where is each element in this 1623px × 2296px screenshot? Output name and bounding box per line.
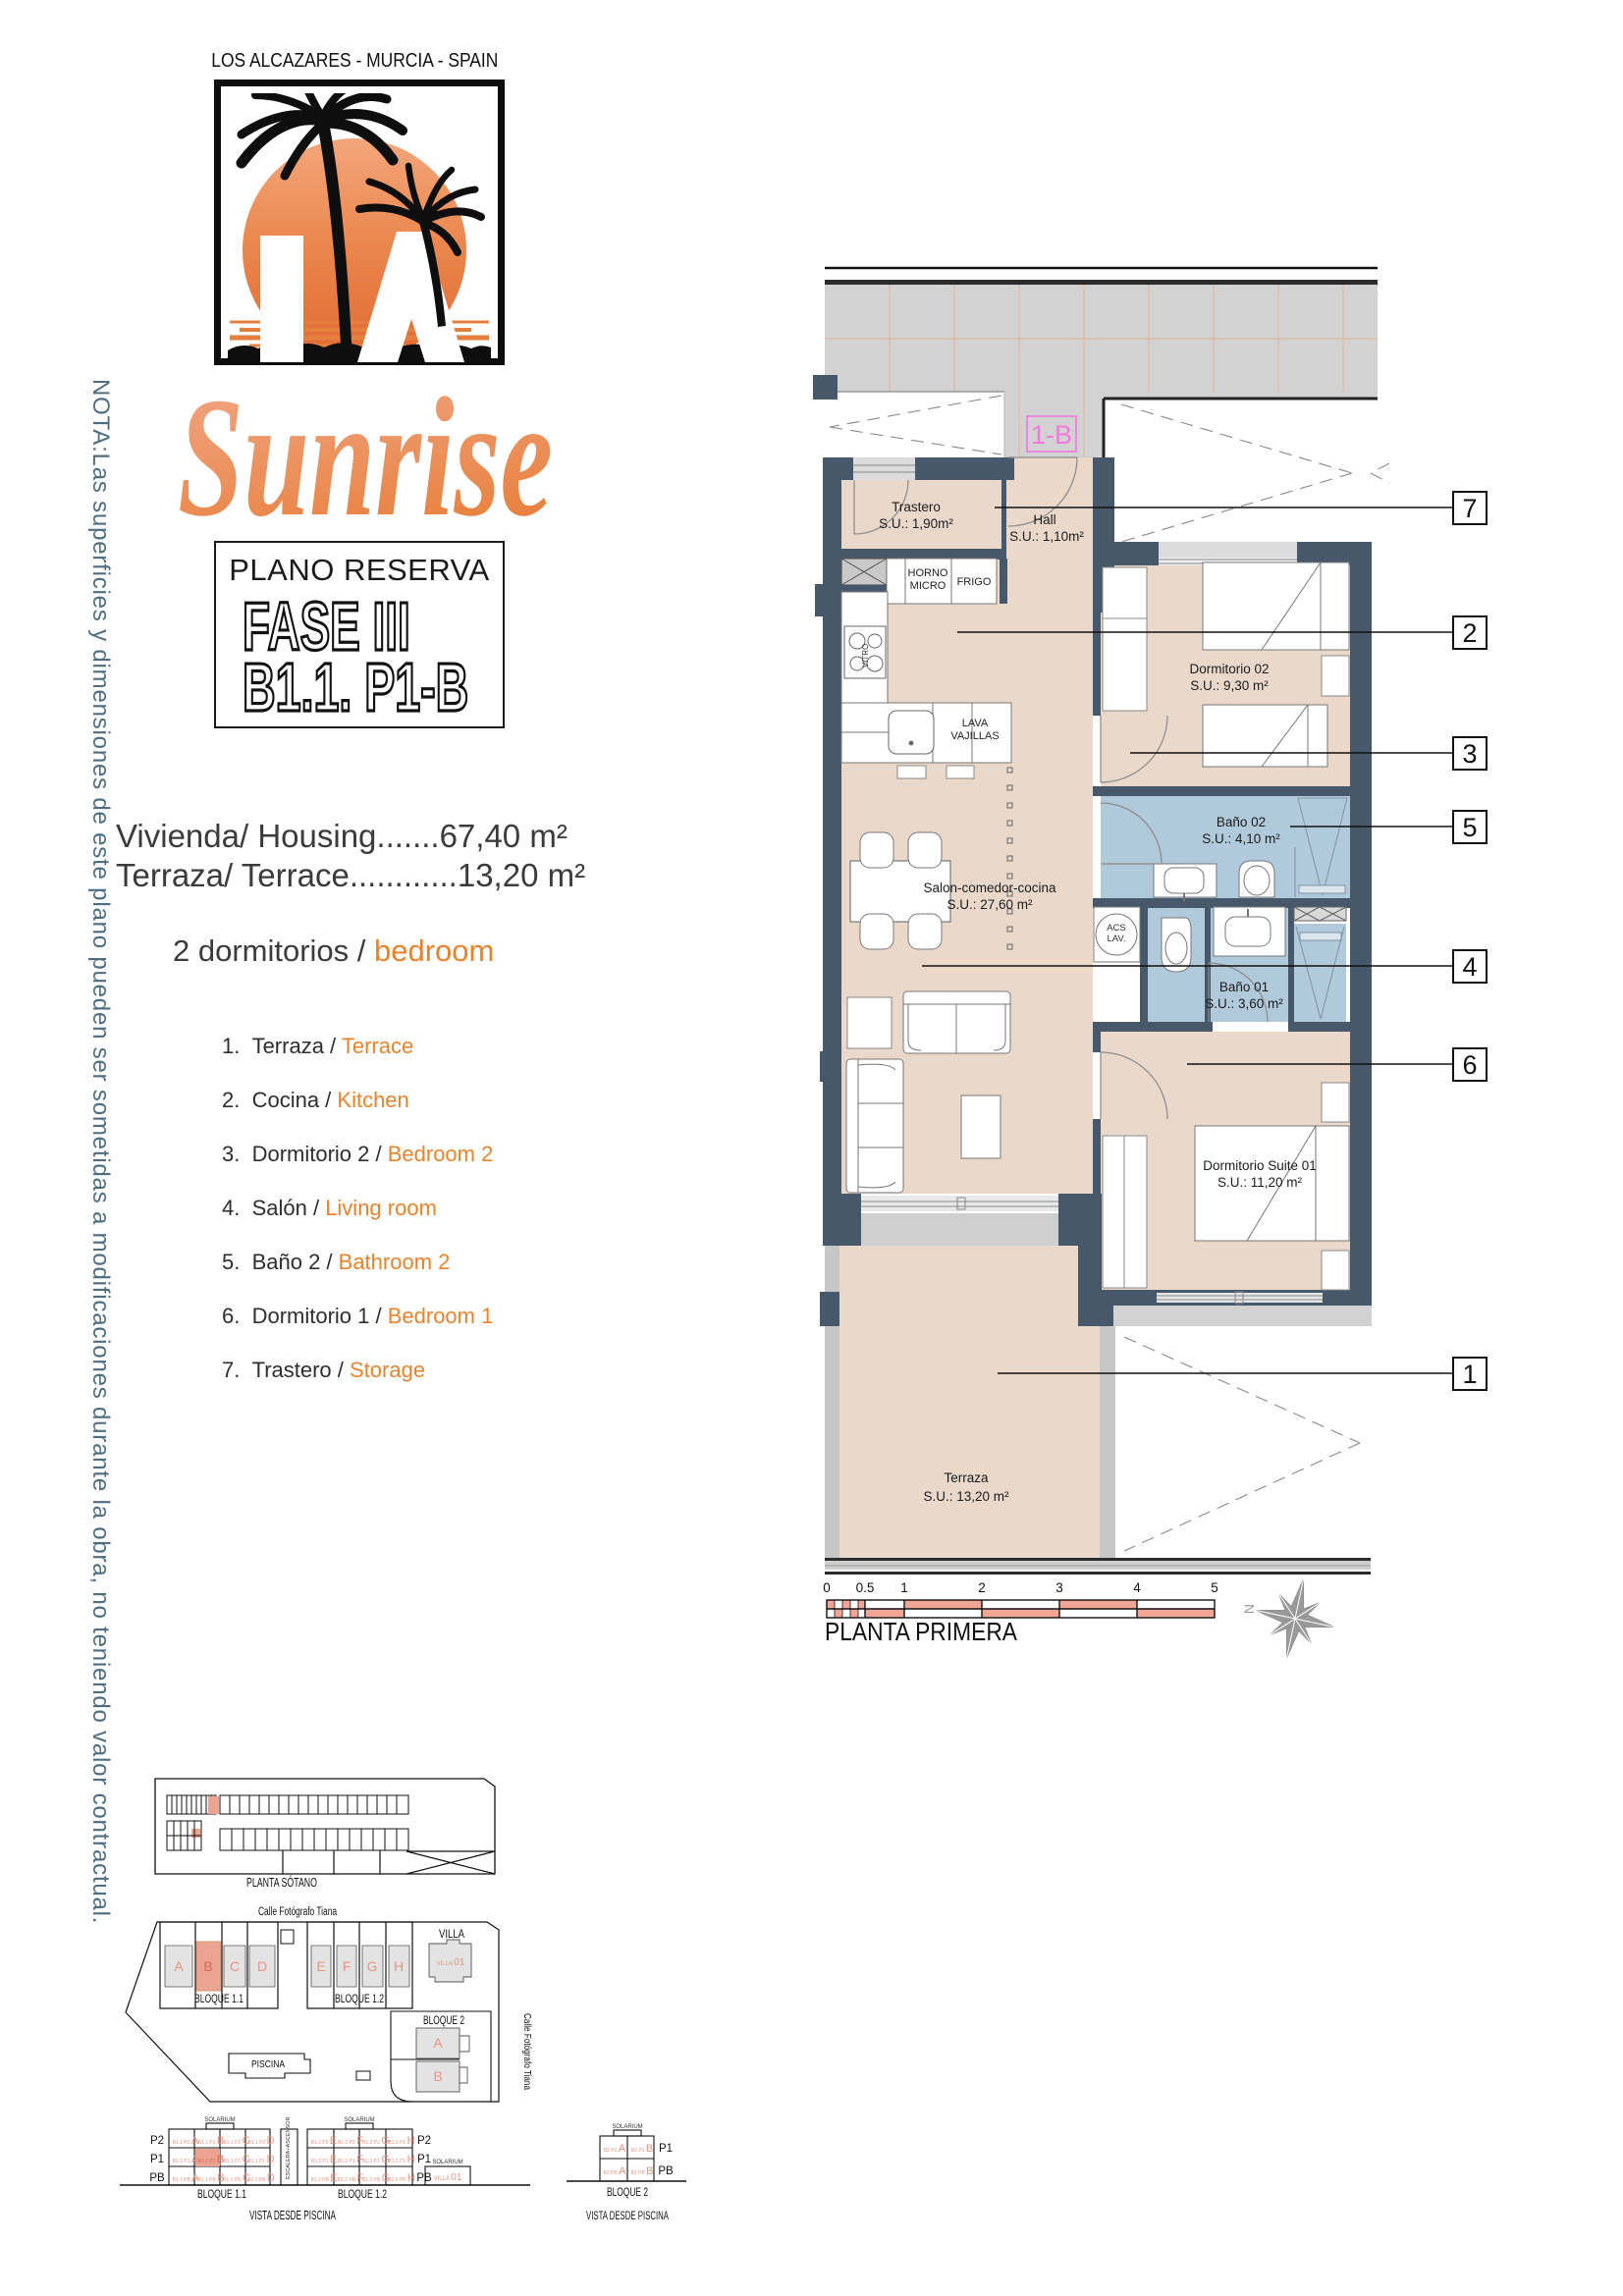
svg-text:Calle Fotógrafo Tiana: Calle Fotógrafo Tiana bbox=[258, 1906, 337, 1918]
svg-text:0.5: 0.5 bbox=[856, 1580, 875, 1595]
svg-text:B1.1 P2 C: B1.1 P2 C bbox=[223, 2135, 249, 2147]
svg-text:B1.2 P1 E: B1.2 P1 E bbox=[311, 2154, 338, 2165]
svg-text:VILLA 01: VILLA 01 bbox=[434, 2172, 462, 2183]
svg-text:PB: PB bbox=[416, 2172, 432, 2184]
svg-text:Dormitorio 02: Dormitorio 02 bbox=[1189, 662, 1269, 676]
svg-text:MICRO: MICRO bbox=[910, 580, 947, 592]
svg-text:B1.1 PB A: B1.1 PB A bbox=[172, 2172, 199, 2184]
svg-text:B2 P1 A: B2 P1 A bbox=[604, 2143, 626, 2155]
svg-text:B2 PB B: B2 PB B bbox=[631, 2165, 654, 2177]
svg-text:1: 1 bbox=[900, 1580, 908, 1595]
svg-text:B1.1 PB C: B1.1 PB C bbox=[223, 2172, 250, 2184]
svg-text:Calle Fotógrafo Tiana: Calle Fotógrafo Tiana bbox=[521, 2013, 533, 2090]
svg-text:B1.2 P1 G: B1.2 P1 G bbox=[362, 2154, 390, 2165]
svg-text:6: 6 bbox=[1462, 1050, 1477, 1080]
svg-text:B1.2 PB E: B1.2 PB E bbox=[310, 2172, 337, 2184]
svg-text:Terraza: Terraza bbox=[944, 1470, 989, 1485]
svg-text:G: G bbox=[367, 1958, 378, 1974]
svg-text:Sunrise: Sunrise bbox=[178, 365, 553, 542]
svg-text:2: 2 bbox=[978, 1580, 986, 1595]
svg-text:1-B: 1-B bbox=[1031, 420, 1072, 450]
svg-text:BLOQUE 2: BLOQUE 2 bbox=[607, 2187, 648, 2199]
svg-text:B1.2 P2 E: B1.2 P2 E bbox=[311, 2135, 338, 2147]
svg-text:B1.1 P2 A: B1.1 P2 A bbox=[173, 2135, 199, 2147]
svg-text:A: A bbox=[433, 2035, 443, 2051]
svg-text:SOLARIUM: SOLARIUM bbox=[612, 2124, 642, 2130]
svg-text:B1.2 P1 H: B1.2 P1 H bbox=[388, 2154, 414, 2165]
svg-text:Baño 02: Baño 02 bbox=[1217, 815, 1266, 829]
svg-text:LAV.: LAV. bbox=[1107, 934, 1125, 944]
svg-text:B1.2 P1 F: B1.2 P1 F bbox=[338, 2154, 363, 2165]
svg-text:B1.1 PB D: B1.1 PB D bbox=[247, 2172, 275, 2184]
svg-text:3: 3 bbox=[1462, 739, 1477, 769]
svg-text:SOLARIUM: SOLARIUM bbox=[432, 2160, 462, 2165]
svg-text:VAJILLAS: VAJILLAS bbox=[950, 730, 999, 742]
svg-text:PISCINA: PISCINA bbox=[251, 2058, 285, 2070]
svg-text:SOLARIUM: SOLARIUM bbox=[204, 2117, 235, 2123]
svg-text:B2 P1 B: B2 P1 B bbox=[631, 2143, 653, 2155]
svg-text:B1.2 PB H: B1.2 PB H bbox=[388, 2172, 415, 2184]
svg-text:LAVA: LAVA bbox=[962, 718, 989, 729]
svg-text:7: 7 bbox=[1462, 494, 1477, 523]
svg-text:B1.2 P2 H: B1.2 P2 H bbox=[388, 2135, 414, 2147]
svg-text:C: C bbox=[230, 1958, 240, 1974]
svg-text:Trastero: Trastero bbox=[892, 500, 941, 514]
svg-text:B: B bbox=[433, 2068, 442, 2084]
svg-text:B1.1 P1 C: B1.1 P1 C bbox=[223, 2154, 249, 2165]
svg-text:A: A bbox=[174, 1958, 184, 1974]
svg-text:B: B bbox=[203, 1958, 212, 1974]
svg-text:H: H bbox=[394, 1958, 404, 1974]
svg-text:P1: P1 bbox=[150, 2154, 164, 2165]
svg-text:B1.1 P2 B: B1.1 P2 B bbox=[198, 2135, 225, 2147]
svg-text:Baño 01: Baño 01 bbox=[1219, 980, 1269, 994]
svg-text:S.U.: 1,90m²: S.U.: 1,90m² bbox=[879, 516, 953, 531]
svg-text:4: 4 bbox=[1133, 1580, 1141, 1595]
svg-text:5: 5 bbox=[1211, 1580, 1218, 1595]
svg-text:ACS: ACS bbox=[1107, 923, 1126, 934]
svg-text:F: F bbox=[343, 1958, 352, 1974]
svg-text:3: 3 bbox=[1055, 1580, 1063, 1595]
svg-text:B1.1 PB B: B1.1 PB B bbox=[197, 2172, 224, 2184]
svg-text:VITRO: VITRO bbox=[861, 644, 870, 667]
svg-text:SOLARIUM: SOLARIUM bbox=[344, 2117, 374, 2123]
svg-text:P2: P2 bbox=[417, 2135, 431, 2147]
svg-text:S.U.: 13,20 m²: S.U.: 13,20 m² bbox=[923, 1489, 1009, 1504]
svg-text:ESCALERA+ASCENSOR: ESCALERA+ASCENSOR bbox=[286, 2117, 292, 2179]
svg-text:S.U.: 9,30 m²: S.U.: 9,30 m² bbox=[1190, 678, 1269, 693]
svg-text:P1: P1 bbox=[659, 2143, 673, 2155]
svg-text:S.U.: 1,10m²: S.U.: 1,10m² bbox=[1009, 529, 1084, 544]
svg-text:Hall: Hall bbox=[1033, 512, 1055, 527]
svg-text:BLOQUE 1.1: BLOQUE 1.1 bbox=[194, 1994, 243, 2005]
svg-text:S.U.: 3,60 m²: S.U.: 3,60 m² bbox=[1205, 996, 1283, 1011]
svg-text:E: E bbox=[316, 1958, 325, 1974]
svg-text:B1.1 P1 D: B1.1 P1 D bbox=[247, 2154, 274, 2165]
svg-text:S.U.: 4,10 m²: S.U.: 4,10 m² bbox=[1202, 831, 1280, 846]
svg-text:BLOQUE 1.2: BLOQUE 1.2 bbox=[335, 1994, 384, 2005]
svg-text:B1.1 P2 D: B1.1 P2 D bbox=[247, 2135, 274, 2147]
svg-text:BLOQUE 1.2: BLOQUE 1.2 bbox=[338, 2189, 387, 2201]
svg-text:P2: P2 bbox=[150, 2135, 164, 2147]
svg-text:N: N bbox=[1241, 1604, 1257, 1614]
svg-text:VISTA DESDE PISCINA: VISTA DESDE PISCINA bbox=[586, 2209, 669, 2222]
svg-text:FRIGO: FRIGO bbox=[957, 576, 992, 588]
svg-text:5: 5 bbox=[1462, 813, 1477, 842]
svg-text:PLANTA SÓTANO: PLANTA SÓTANO bbox=[246, 1875, 317, 1890]
svg-text:1: 1 bbox=[1462, 1360, 1477, 1389]
svg-text:HORNO: HORNO bbox=[908, 567, 948, 579]
svg-text:BLOQUE 1.1: BLOQUE 1.1 bbox=[197, 2189, 246, 2201]
svg-text:4: 4 bbox=[1462, 952, 1477, 982]
svg-text:2: 2 bbox=[1462, 618, 1477, 648]
svg-text:B1.2 PB G: B1.2 PB G bbox=[362, 2172, 390, 2184]
svg-text:BLOQUE 2: BLOQUE 2 bbox=[423, 2015, 464, 2027]
svg-text:P1: P1 bbox=[417, 2154, 431, 2165]
svg-text:VILLA: VILLA bbox=[439, 1929, 464, 1941]
svg-text:Salon-comedor-cocina: Salon-comedor-cocina bbox=[923, 881, 1056, 895]
svg-text:B2 PB A: B2 PB A bbox=[604, 2165, 627, 2177]
svg-text:PB: PB bbox=[149, 2172, 165, 2184]
svg-text:B1.2 PB F: B1.2 PB F bbox=[338, 2172, 364, 2184]
svg-text:VISTA DESDE PISCINA: VISTA DESDE PISCINA bbox=[249, 2208, 336, 2222]
svg-text:S.U.: 27,60 m²: S.U.: 27,60 m² bbox=[947, 897, 1033, 912]
svg-text:0: 0 bbox=[823, 1580, 831, 1595]
svg-text:B1.1 P1 A: B1.1 P1 A bbox=[173, 2154, 199, 2165]
svg-text:PLANTA PRIMERA: PLANTA PRIMERA bbox=[825, 1617, 1018, 1646]
svg-text:B1.2 P2 F: B1.2 P2 F bbox=[338, 2135, 363, 2147]
svg-text:PB: PB bbox=[658, 2165, 674, 2177]
svg-text:Dormitorio Suite 01: Dormitorio Suite 01 bbox=[1203, 1158, 1317, 1173]
svg-text:D: D bbox=[257, 1958, 267, 1974]
svg-text:B1.2 P2 G: B1.2 P2 G bbox=[362, 2135, 390, 2147]
svg-text:S.U.: 11,20 m²: S.U.: 11,20 m² bbox=[1217, 1175, 1303, 1190]
